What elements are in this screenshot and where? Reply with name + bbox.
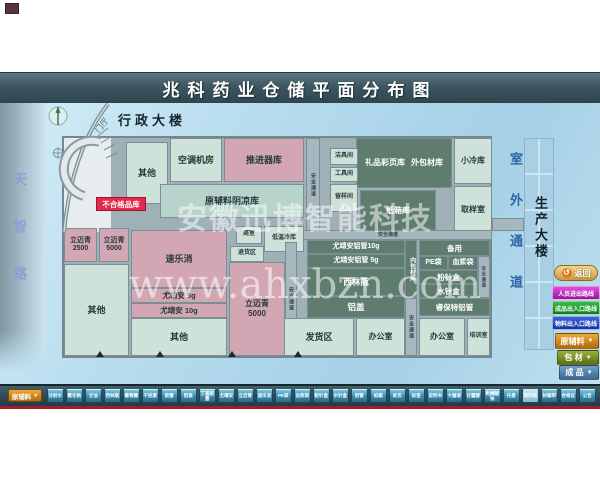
bottom-item[interactable]: 注射水 xyxy=(47,389,64,403)
corridor-3: 安全通道 xyxy=(405,298,417,356)
room-alu-caps: 铝盖 xyxy=(307,296,405,318)
room-yja-tube-5g: 尤靖安铝管 5g xyxy=(307,254,405,268)
bottom-item[interactable]: 合格证 xyxy=(560,389,577,403)
room-vials: 西林瓶 xyxy=(307,268,405,296)
room-cleaning-tools: 洁具间 xyxy=(330,148,358,165)
entrance-marker xyxy=(96,351,104,357)
room-office-1: 办公室 xyxy=(356,318,405,356)
room-gift-outerpack: 礼品彩页库 外包材库 xyxy=(356,138,452,188)
raw-material-dropdown[interactable]: 原辅料▼ xyxy=(555,333,599,349)
entrance-marker xyxy=(228,351,236,357)
bottom-item[interactable]: 甘油 xyxy=(85,389,102,403)
bottom-item[interactable]: 大输液 xyxy=(446,389,463,403)
room-carton: 纸箱库 xyxy=(360,190,436,232)
bottom-item[interactable]: 西林瓶 xyxy=(104,389,121,403)
room-ruibaote-tube: 睿保特铝管 xyxy=(419,298,490,316)
packaging-dropdown[interactable]: 包 材▼ xyxy=(557,350,599,365)
corridor-1: 安全通道 xyxy=(306,138,320,232)
bottom-item[interactable]: 水针盒 xyxy=(332,389,349,403)
chevron-down-icon: ▼ xyxy=(587,370,593,376)
bottom-item[interactable]: 说明书 xyxy=(427,389,444,403)
room-yja-tube-10g: 尤靖安铝管10g xyxy=(307,240,405,254)
chevron-down-icon: ▼ xyxy=(33,393,38,399)
bottom-item[interactable]: 丁基胶塞 xyxy=(199,389,216,403)
bottom-item[interactable]: 托盘 xyxy=(503,389,520,403)
room-limaiqing-5000-big: 立迈青5000 xyxy=(229,262,285,356)
room-outer-packaging-label: 外包材库 xyxy=(411,158,443,168)
compass-icon xyxy=(49,106,67,125)
chevron-down-icon: ▼ xyxy=(586,355,592,361)
back-button[interactable]: ↺ 返回 xyxy=(554,265,598,281)
outdoor-connector xyxy=(492,218,524,231)
bottom-item[interactable]: PE袋 xyxy=(275,389,292,403)
room-powder-inj-box: 粉针盒 xyxy=(419,270,478,284)
personnel-route-button[interactable]: 人员进出路线 xyxy=(552,286,600,300)
room-sample-keep: 留样间 xyxy=(330,184,358,212)
bottom-raw-material-dropdown[interactable]: 原辅料▼ xyxy=(8,389,42,402)
app-window: 兆科药业仓储平面分布图 天智路 室外通道 行政大楼 门厅 其他 空调机房 xyxy=(0,0,600,488)
room-youjingan-5g: 尤靖安 5g xyxy=(131,288,227,303)
room-other-left: 其他 xyxy=(64,264,129,356)
bottom-item[interactable]: 枸橼酸钠 xyxy=(484,389,501,403)
production-building-label: 生产大楼 xyxy=(531,196,550,260)
room-office-small: 商室 xyxy=(236,226,262,244)
room-inner-packaging: 内包材库 xyxy=(405,240,417,298)
bottom-item[interactable]: 胶塞 xyxy=(161,389,178,403)
corner-logo-mark xyxy=(5,3,19,14)
corridor-4: 安全通道 xyxy=(478,256,490,298)
bottom-item[interactable]: 立迈青 xyxy=(237,389,254,403)
bottom-item[interactable]: 甘露醇 xyxy=(465,389,482,403)
room-other-bottom: 其他 xyxy=(131,318,227,356)
room-raw-material-cool: 原辅料阴凉库 xyxy=(160,184,304,218)
finished-goods-route-button[interactable]: 成品出入口路线 xyxy=(552,301,600,315)
room-spare: 备用 xyxy=(419,240,490,256)
back-arrow-icon: ↺ xyxy=(562,268,572,278)
map-vector-overlay xyxy=(44,98,144,243)
room-sulexiao: 速乐消 xyxy=(131,230,227,288)
room-sampling: 取样室 xyxy=(454,186,492,234)
unqualified-store-label: 不合格品库 xyxy=(96,197,146,211)
room-gift-brochure-label: 礼品彩页库 xyxy=(365,158,405,168)
room-small-cold: 小冷库 xyxy=(454,138,492,184)
bottom-item[interactable]: 粉针盒 xyxy=(313,389,330,403)
curved-wall xyxy=(64,104,108,232)
entrance-marker xyxy=(294,351,302,357)
room-returns: 退货区 xyxy=(230,246,264,262)
accent-divider xyxy=(0,406,600,409)
bottom-item[interactable]: 铝管 xyxy=(351,389,368,403)
bottom-item[interactable]: 周转箱 xyxy=(522,389,539,403)
room-pe-bags: PE袋 xyxy=(419,256,448,270)
bottom-item[interactable]: 标签 xyxy=(408,389,425,403)
bottom-item[interactable]: 速乐消 xyxy=(256,389,273,403)
bottom-item[interactable]: 血浆袋 xyxy=(294,389,311,403)
material-route-button[interactable]: 物料出入口路线 xyxy=(552,316,600,330)
corridor-top-horizontal: 安全通道 xyxy=(284,230,492,240)
room-office-2: 办公室 xyxy=(419,318,465,356)
room-training: 培训室 xyxy=(467,318,490,356)
west-road-label: 天智路 xyxy=(10,172,30,313)
bottom-item[interactable]: 彩页 xyxy=(389,389,406,403)
room-tools: 工具间 xyxy=(330,167,358,182)
entry-ramp xyxy=(64,128,117,196)
room-youjingan-10g: 尤靖安 10g xyxy=(131,303,227,318)
room-propeller: 推进器库 xyxy=(224,138,304,182)
entrance-marker xyxy=(156,351,164,357)
bottom-item[interactable]: 纸箱 xyxy=(370,389,387,403)
room-hvac: 空调机房 xyxy=(170,138,222,182)
bottom-item[interactable]: 公告 xyxy=(579,389,596,403)
bottom-item[interactable]: 干扰素 xyxy=(142,389,159,403)
bottom-item[interactable]: 氯化钠 xyxy=(66,389,83,403)
bottom-item[interactable]: 尤靖安 xyxy=(218,389,235,403)
finished-goods-dropdown[interactable]: 成 品▼ xyxy=(559,365,599,380)
room-plasma-bags: 血浆袋 xyxy=(448,256,478,270)
bottom-item[interactable]: 封箱带 xyxy=(541,389,558,403)
safety-corridor-label: 安全通道 xyxy=(310,173,316,197)
bottom-item[interactable]: 铝盖 xyxy=(180,389,197,403)
outdoor-passage-label: 室外通道 xyxy=(506,152,525,316)
room-low-temp-cold: 低温冷库 xyxy=(264,226,304,252)
page-title: 兆科药业仓储平面分布图 xyxy=(163,76,438,101)
chevron-down-icon: ▼ xyxy=(588,338,594,344)
room-water-inj-box: 水针盒 xyxy=(419,284,478,298)
bottom-item[interactable]: 葡萄糖 xyxy=(123,389,140,403)
